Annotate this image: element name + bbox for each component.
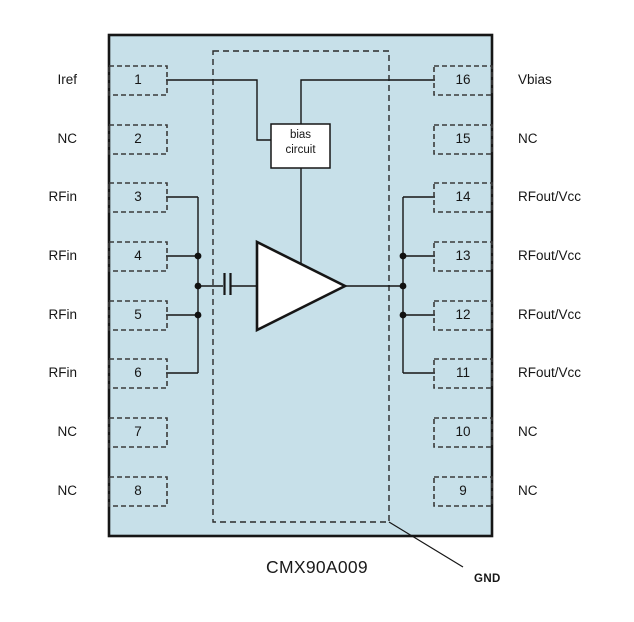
pin-number-12: 12	[434, 306, 492, 324]
bias-circuit-label: bias circuit	[271, 128, 330, 168]
pin-label-nc-9: NC	[518, 482, 630, 500]
pin-number-6: 6	[109, 364, 167, 382]
junction-dot	[400, 283, 407, 290]
pin-number-1: 1	[109, 71, 167, 89]
bias-circuit-label-line2: circuit	[271, 143, 330, 158]
pin-label-rfin-6: RFin	[0, 364, 77, 382]
pin-label-rfin-5: RFin	[0, 306, 77, 324]
pin-number-11: 11	[434, 364, 492, 382]
pin-label-nc-10: NC	[518, 423, 630, 441]
pin-label-rfout-12: RFout/Vcc	[518, 306, 630, 324]
pin-label-rfout-11: RFout/Vcc	[518, 364, 630, 382]
pin-number-13: 13	[434, 247, 492, 265]
junction-dot	[400, 312, 407, 319]
pin-label-iref: Iref	[0, 71, 77, 89]
junction-dot	[195, 312, 202, 319]
pin-label-rfin-3: RFin	[0, 188, 77, 206]
junction-dot	[195, 253, 202, 260]
pin-number-3: 3	[109, 188, 167, 206]
pin-number-10: 10	[434, 423, 492, 441]
pin-number-16: 16	[434, 71, 492, 89]
pin-number-5: 5	[109, 306, 167, 324]
pin-label-nc-7: NC	[0, 423, 77, 441]
pin-number-4: 4	[109, 247, 167, 265]
pin-label-vbias: Vbias	[518, 71, 630, 89]
pin-label-rfout-14: RFout/Vcc	[518, 188, 630, 206]
pin-label-rfin-4: RFin	[0, 247, 77, 265]
bias-circuit-label-line1: bias	[271, 128, 330, 143]
pin-label-rfout-13: RFout/Vcc	[518, 247, 630, 265]
pin-number-15: 15	[434, 130, 492, 148]
gnd-label: GND	[474, 570, 534, 588]
pin-number-8: 8	[109, 482, 167, 500]
part-number: CMX90A009	[232, 558, 402, 576]
pin-label-nc-2: NC	[0, 130, 77, 148]
pinout-diagram: Iref NC RFin RFin RFin RFin NC NC 1 2 3 …	[0, 0, 634, 622]
pin-label-nc-15: NC	[518, 130, 630, 148]
pin-number-7: 7	[109, 423, 167, 441]
pin-number-2: 2	[109, 130, 167, 148]
pin-number-9: 9	[434, 482, 492, 500]
junction-dot	[195, 283, 202, 290]
pin-label-nc-8: NC	[0, 482, 77, 500]
pin-number-14: 14	[434, 188, 492, 206]
junction-dot	[400, 253, 407, 260]
